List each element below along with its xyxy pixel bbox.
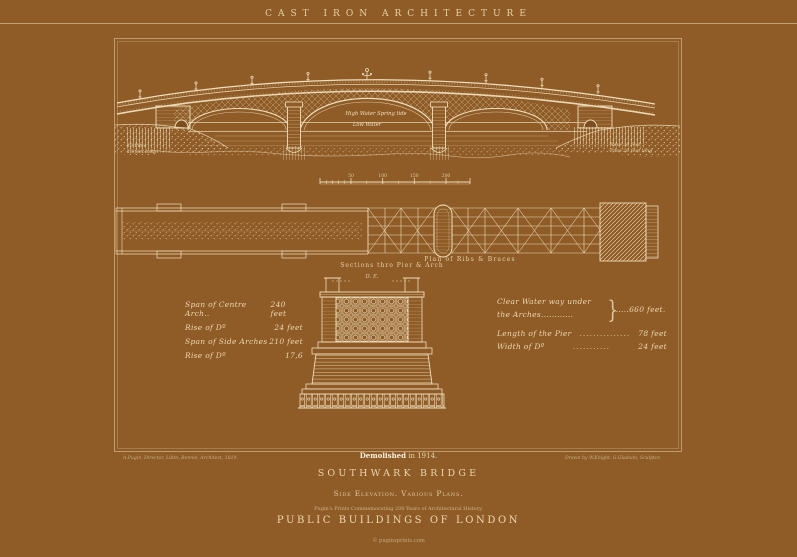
series-note: Pugin's Prints Commemorating 200 Years o…: [0, 506, 797, 512]
dimension-label: Span of Centre Arch..: [185, 300, 271, 318]
plan-drawing: [116, 203, 658, 261]
demolished-word: Demolished: [360, 451, 406, 460]
dimension-value: 210 feet: [269, 337, 303, 346]
clear-water-value: ......660 feet.: [613, 305, 666, 314]
series-title: PUBLIC BUILDINGS OF LONDON: [0, 515, 797, 526]
dimension-value: 17,6: [285, 351, 303, 360]
dimension-leader: ...............: [572, 329, 639, 338]
scale-tick-label: 150: [410, 174, 419, 179]
series-heading: CAST IRON ARCHITECTURE: [0, 9, 797, 19]
dimension-label: Width of Dº: [497, 342, 545, 351]
clear-water-line2: the Arches............: [497, 310, 573, 319]
high-water-label: High Water Spring tide: [331, 111, 421, 117]
clear-water-group: Clear Water way under the Arches........…: [497, 297, 667, 324]
dimension-row: Span of Side Arches 210 feet: [185, 337, 303, 346]
dimension-value: 240 feet: [271, 300, 304, 318]
dimensions-left: Span of Centre Arch.. 240 feet Rise of D…: [185, 300, 303, 365]
poster: CAST IRON ARCHITECTURE High Water Spring…: [0, 0, 797, 557]
centre-ornament: [362, 69, 371, 81]
dimension-label: Span of Side Arches: [185, 337, 267, 346]
dimension-row: Rise of Dº 17,6: [185, 351, 303, 360]
low-water-label: Low Water: [330, 122, 404, 128]
pier-section-drawing: [298, 278, 446, 408]
dimension-row: Span of Centre Arch.. 240 feet: [185, 300, 303, 318]
scale-tick-label: 200: [442, 174, 451, 179]
dimension-row: Rise of Dº 24 feet: [185, 323, 303, 332]
dimension-leader: ...........: [545, 342, 639, 351]
scale-tick-label: 50: [348, 174, 354, 179]
dimension-row: Width of Dº ........... 24 feet: [497, 342, 667, 351]
dimension-value: 24 feet: [638, 342, 667, 351]
dimension-value: 78 feet: [638, 329, 667, 338]
scale-tick-label: 100: [378, 174, 387, 179]
demolished-note: Demolished in 1914.: [0, 451, 797, 460]
publisher-watermark: © puginsprints.com: [0, 538, 797, 544]
dimensions-right: Clear Water way under the Arches........…: [497, 297, 667, 351]
right-pile-note-line2: Piles 20 feet long: [610, 149, 652, 155]
section-reference-letters: D. E.: [342, 274, 402, 280]
plate-title: SOUTHWARK BRIDGE: [0, 468, 797, 479]
section-caption: Sections thro Pier & Arch: [317, 262, 467, 269]
dimension-value: 24 feet: [274, 323, 303, 332]
dimension-row: Length of the Pier ............... 78 fe…: [497, 329, 667, 338]
clear-water-line1: Clear Water way under: [497, 297, 591, 306]
left-pile-note-line2: 18 feet long: [127, 150, 156, 156]
right-pile-note: Base 36 feet Piles 20 feet long: [610, 143, 652, 155]
demolished-date: in 1914.: [406, 452, 437, 460]
dimension-label: Length of the Pier: [497, 329, 572, 338]
dimension-label: Rise of Dº: [185, 351, 226, 360]
plate-subtitle: Side Elevation. Various Plans.: [0, 489, 797, 498]
left-pile-note: 12 Piles 18 feet long: [127, 144, 156, 156]
dimension-label: Rise of Dº: [185, 323, 226, 332]
